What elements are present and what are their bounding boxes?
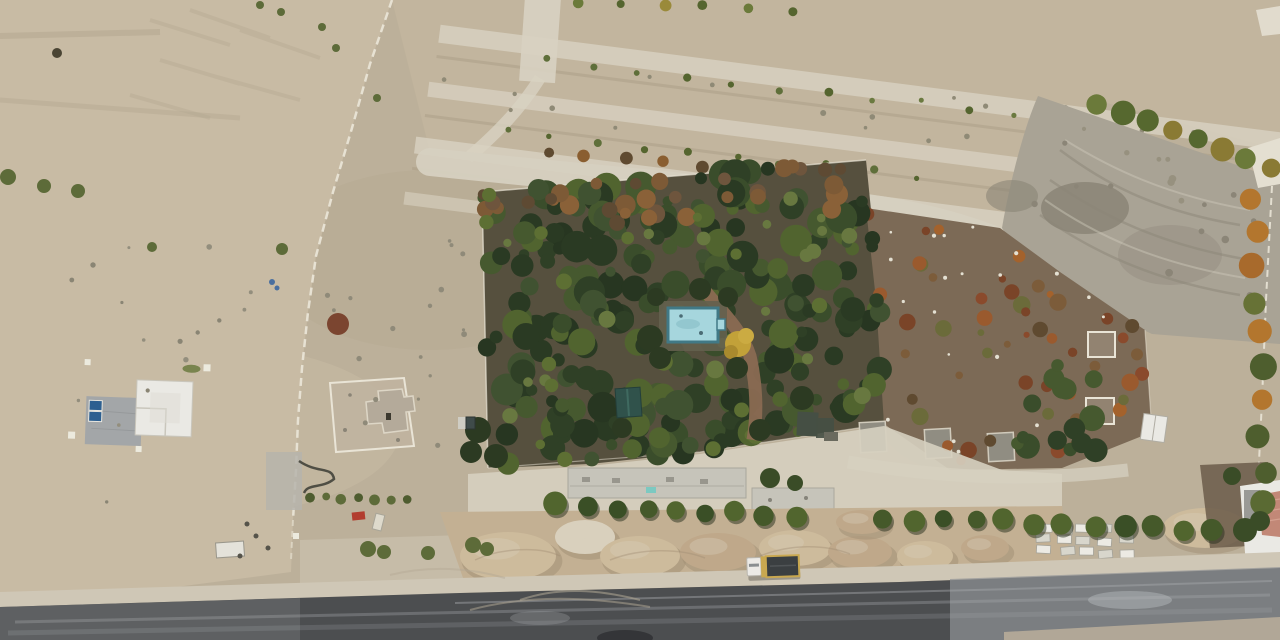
tree	[511, 254, 534, 277]
tree	[734, 403, 749, 418]
tree	[783, 192, 797, 206]
tree	[706, 361, 724, 379]
tree	[1240, 189, 1261, 210]
tree	[1262, 159, 1280, 178]
block-pallet	[1036, 545, 1050, 554]
dig-mark	[1082, 127, 1086, 131]
slab-mark	[804, 496, 808, 500]
ground-speckle	[439, 287, 445, 293]
autumn-bush	[1021, 307, 1030, 316]
autumn-bush	[1101, 313, 1113, 325]
bush	[256, 1, 264, 9]
autumn-bush	[929, 273, 938, 282]
tree	[800, 249, 813, 262]
autumn-tree	[822, 200, 841, 219]
tree	[667, 501, 685, 519]
shrub	[728, 82, 734, 88]
shrub	[914, 176, 919, 181]
ground-speckle	[952, 96, 956, 100]
tree	[542, 357, 556, 371]
autumn-tree	[545, 193, 557, 205]
shrub	[590, 64, 597, 71]
tree	[786, 507, 807, 528]
bush	[147, 242, 157, 252]
tree	[749, 419, 771, 441]
litter-dot	[971, 226, 974, 229]
rubble	[343, 428, 347, 432]
autumn-tree	[641, 210, 657, 226]
shrub	[1011, 113, 1016, 118]
ground-speckle	[105, 500, 108, 503]
shrub	[617, 0, 625, 8]
autumn-tree	[718, 173, 731, 186]
bush	[327, 313, 349, 335]
litter-dot	[957, 450, 961, 454]
bush	[421, 546, 435, 560]
bush	[275, 286, 280, 291]
shrub	[965, 106, 973, 114]
tree	[772, 392, 787, 407]
tree	[556, 274, 572, 290]
autumn-tree	[591, 178, 603, 190]
ground-speckle	[183, 357, 188, 362]
tree	[460, 441, 482, 463]
autumn-bush	[976, 293, 988, 305]
autumn-bush	[1024, 332, 1030, 338]
autumn-bush	[911, 408, 928, 425]
ground-speckle	[926, 138, 931, 143]
cyan-marker	[646, 487, 656, 493]
tree	[647, 288, 665, 306]
red-object	[352, 511, 366, 520]
bush	[465, 537, 481, 553]
tree	[1043, 368, 1064, 389]
bush	[787, 475, 803, 491]
autumn-bush	[1068, 348, 1077, 357]
sand-pile-highlight	[904, 545, 932, 559]
tree	[545, 379, 559, 393]
tree	[482, 188, 496, 202]
bush	[480, 542, 494, 556]
litter-dot	[1102, 315, 1105, 318]
tree	[1255, 462, 1277, 484]
aerial-photo-canvas	[0, 0, 1280, 640]
tree	[817, 226, 827, 236]
ground-speckle	[983, 104, 988, 109]
autumn-tree	[824, 175, 843, 194]
litter-dot	[890, 231, 893, 234]
autumn-bush	[1125, 319, 1139, 333]
bin-light-half	[458, 417, 466, 429]
tree	[561, 231, 593, 263]
tree	[557, 452, 572, 467]
debris	[238, 554, 243, 559]
litter-dot	[948, 353, 951, 356]
tree	[1235, 148, 1256, 169]
tree	[1201, 519, 1223, 541]
tree	[790, 386, 814, 410]
ground-speckle	[178, 339, 183, 344]
ground-speckle	[142, 338, 146, 342]
tree	[612, 418, 632, 438]
tree	[796, 327, 807, 338]
autumn-bush	[1032, 322, 1048, 338]
ground-speckle	[127, 246, 130, 249]
tree	[763, 220, 772, 229]
tree	[496, 423, 518, 445]
tree	[484, 444, 508, 468]
dig-mark	[1074, 184, 1079, 189]
litter-dot	[1055, 272, 1059, 276]
tree	[655, 398, 672, 415]
dig-mark	[1165, 269, 1173, 277]
ground-speckle	[442, 77, 447, 82]
autumn-tree	[637, 190, 656, 209]
yellow-tree	[724, 345, 738, 359]
slab-mark	[666, 477, 674, 482]
dig-mark	[1179, 198, 1185, 204]
tree	[578, 497, 598, 517]
tree	[968, 511, 986, 529]
gate-post	[136, 446, 142, 452]
tree	[513, 221, 536, 244]
autumn-bush	[1049, 294, 1066, 311]
tree	[502, 408, 517, 423]
tree	[584, 452, 599, 467]
tree	[492, 247, 510, 265]
rubble	[396, 438, 400, 442]
ground-speckle	[417, 398, 420, 401]
autumn-tree	[651, 173, 668, 190]
shrub	[869, 98, 875, 104]
tree	[1248, 319, 1272, 343]
bush	[354, 493, 363, 502]
autumn-tree	[696, 161, 709, 174]
tree	[791, 363, 809, 381]
bush	[369, 495, 380, 506]
tree	[1085, 370, 1103, 388]
autumn-bush	[1018, 375, 1032, 389]
tree	[1142, 515, 1164, 537]
tree	[830, 401, 842, 413]
sand-pile-highlight	[967, 538, 991, 550]
paved-patch	[266, 452, 302, 510]
tree	[695, 172, 707, 184]
tree	[1211, 138, 1235, 162]
bush	[52, 48, 62, 58]
pool-water-shade	[676, 319, 700, 329]
tree	[761, 162, 775, 176]
bush	[269, 279, 275, 285]
tree	[696, 505, 714, 523]
tree	[503, 239, 511, 247]
tree	[513, 323, 540, 350]
tree	[599, 311, 616, 328]
road-patch	[1088, 591, 1172, 609]
tree	[1137, 109, 1159, 131]
litter-dot	[886, 418, 890, 422]
shrub	[684, 148, 692, 156]
bush	[336, 494, 347, 505]
ground-speckle	[325, 293, 330, 298]
ground-speckle	[373, 397, 378, 402]
dirt-path	[519, 0, 561, 83]
tree	[605, 267, 615, 277]
autumn-bush	[912, 256, 926, 270]
autumn-bush	[1004, 284, 1019, 299]
tree	[935, 510, 952, 527]
tree	[767, 258, 788, 279]
tree	[792, 274, 815, 297]
tree	[555, 398, 569, 412]
tree	[1051, 359, 1064, 372]
tree	[649, 347, 671, 369]
autumn-bush	[1047, 333, 1058, 344]
ground-speckle	[243, 308, 247, 312]
sand-pile-highlight	[836, 540, 868, 554]
slab-mark	[768, 498, 772, 502]
ground-speckle	[820, 110, 826, 116]
autumn-tree	[577, 150, 590, 163]
ground-speckle	[509, 108, 513, 112]
sand-pile-highlight	[610, 541, 650, 559]
shrub	[919, 98, 924, 103]
tree	[904, 510, 926, 532]
roof-shade	[150, 392, 181, 423]
debris	[266, 546, 271, 551]
tree	[609, 501, 627, 519]
bush	[71, 184, 85, 198]
tree	[726, 357, 748, 379]
tree	[689, 278, 711, 300]
shrub	[825, 88, 834, 97]
autumn-tree	[750, 189, 766, 205]
tree	[992, 508, 1013, 529]
ground-speckle	[217, 318, 221, 322]
tree	[1243, 293, 1265, 315]
ground-speckle	[964, 134, 970, 140]
sand-pile-highlight	[843, 513, 869, 524]
dig-mark	[1124, 150, 1129, 155]
tree	[854, 387, 871, 404]
autumn-bush	[1121, 374, 1138, 391]
litter-dot	[943, 234, 946, 237]
shrub	[634, 70, 640, 76]
autumn-bush	[1004, 341, 1011, 348]
autumn-tree	[818, 163, 832, 177]
tree	[697, 232, 711, 246]
tree	[856, 196, 868, 208]
tree	[869, 293, 883, 307]
pool-steps	[717, 319, 725, 330]
shrub	[641, 146, 648, 153]
ground-speckle	[513, 92, 517, 96]
bush	[377, 545, 391, 559]
autumn-bush	[901, 349, 910, 358]
tree	[724, 501, 744, 521]
autumn-bush	[1118, 395, 1129, 406]
tree	[621, 232, 634, 245]
ground-speckle	[870, 114, 876, 120]
tree	[1239, 253, 1265, 279]
slab-mark	[612, 478, 620, 483]
dig-mark	[1062, 141, 1067, 146]
autumn-tree	[544, 148, 554, 158]
tree	[563, 365, 581, 383]
tree	[1189, 129, 1208, 148]
autumn-tree	[630, 178, 642, 190]
ground-speckle	[428, 304, 432, 308]
autumn-bush	[1118, 333, 1129, 344]
small-shed	[1140, 413, 1167, 442]
tree	[644, 229, 654, 239]
litter-dot	[943, 276, 947, 280]
tree	[817, 214, 826, 223]
shrub	[870, 165, 878, 173]
ground-speckle	[146, 388, 150, 392]
road-patch	[510, 611, 570, 625]
tree	[825, 347, 844, 366]
tree	[523, 377, 533, 387]
ground-speckle	[363, 420, 368, 425]
tree	[479, 215, 493, 229]
ground-speckle	[69, 278, 74, 283]
tree	[769, 319, 799, 349]
ground-speckle	[332, 308, 336, 312]
shrub	[697, 0, 707, 10]
ground-speckle	[249, 290, 253, 294]
tree	[788, 295, 804, 311]
block-pallet	[1079, 547, 1093, 555]
gray-structure	[824, 432, 838, 441]
bush	[0, 169, 16, 185]
litter-dot	[1087, 295, 1091, 299]
block-pallet	[1120, 550, 1134, 558]
ground-speckle	[206, 244, 212, 250]
litter-dot	[1014, 251, 1018, 255]
tree	[764, 344, 794, 374]
tree	[866, 241, 878, 253]
sand-pile-highlight	[563, 524, 593, 539]
tree	[1071, 433, 1091, 453]
tree	[1246, 424, 1270, 448]
litter-dot	[1035, 423, 1039, 427]
ground-speckle	[613, 126, 617, 130]
shrub	[594, 139, 602, 147]
autumn-bush	[1042, 408, 1054, 420]
block-pallet	[1098, 550, 1113, 559]
tree	[568, 328, 595, 355]
block-pallet	[1076, 536, 1090, 544]
dig-mark	[1222, 236, 1230, 244]
tree	[550, 413, 575, 438]
tree	[661, 271, 689, 299]
ground-speckle	[460, 251, 465, 256]
tree	[1174, 521, 1194, 541]
autumn-bush	[977, 310, 993, 326]
ground-speckle	[710, 83, 715, 88]
dig-mark	[1108, 183, 1113, 188]
tree	[540, 254, 555, 269]
gate-post	[293, 533, 299, 539]
yellow-tree	[738, 328, 754, 344]
autumn-tree	[721, 191, 733, 203]
litter-dot	[998, 273, 1002, 277]
tree	[534, 226, 547, 239]
bush	[37, 179, 51, 193]
tree	[761, 307, 770, 316]
autumn-bush	[899, 314, 916, 331]
tree	[838, 378, 850, 390]
bush	[276, 243, 288, 255]
pavilion	[615, 387, 642, 418]
tree	[1111, 101, 1136, 126]
tree	[536, 440, 546, 450]
autumn-tree	[785, 160, 799, 174]
bush	[403, 495, 412, 504]
solar-panel	[89, 400, 102, 410]
tree	[1247, 221, 1269, 243]
shrub	[546, 134, 551, 139]
dump-truck	[747, 555, 801, 581]
dig-mark	[1231, 192, 1237, 198]
bush	[760, 468, 780, 488]
litter-dot	[902, 300, 905, 303]
tree	[841, 297, 865, 321]
truck-windshield	[749, 564, 759, 567]
debris	[254, 534, 259, 539]
aerial-photo	[0, 0, 1280, 640]
tree	[1086, 516, 1107, 537]
bush	[387, 496, 396, 505]
tree	[649, 427, 670, 448]
tree	[640, 500, 658, 518]
autumn-bush	[1090, 361, 1101, 372]
ground-speckle	[356, 356, 361, 361]
bush	[360, 541, 376, 557]
litter-dot	[932, 234, 936, 238]
truck-bed-line	[770, 565, 796, 566]
dig-patch	[1041, 182, 1129, 234]
tree	[520, 277, 538, 295]
litter-dot	[952, 439, 956, 443]
autumn-tree	[835, 163, 846, 174]
litter-dot	[961, 272, 964, 275]
bush	[318, 23, 326, 31]
autumn-bush	[978, 329, 985, 336]
ground-speckle	[864, 126, 868, 130]
ground-speckle	[348, 296, 352, 300]
tree	[1017, 431, 1029, 443]
tree	[543, 492, 567, 516]
tree	[1163, 121, 1182, 140]
sand-pile-highlight	[690, 538, 728, 555]
gate-post	[68, 432, 75, 439]
ground-speckle	[461, 331, 467, 337]
tree	[873, 510, 892, 529]
autumn-tree	[657, 156, 668, 167]
bush	[332, 44, 340, 52]
slab-mark	[700, 479, 708, 484]
autumn-tree	[669, 191, 682, 204]
autumn-bush	[934, 225, 944, 235]
tree	[812, 260, 842, 290]
autumn-bush	[984, 435, 996, 447]
autumn-tree	[522, 196, 535, 209]
tree	[1250, 353, 1277, 380]
dig-mark	[1157, 157, 1162, 162]
dig-mark	[1167, 179, 1174, 186]
